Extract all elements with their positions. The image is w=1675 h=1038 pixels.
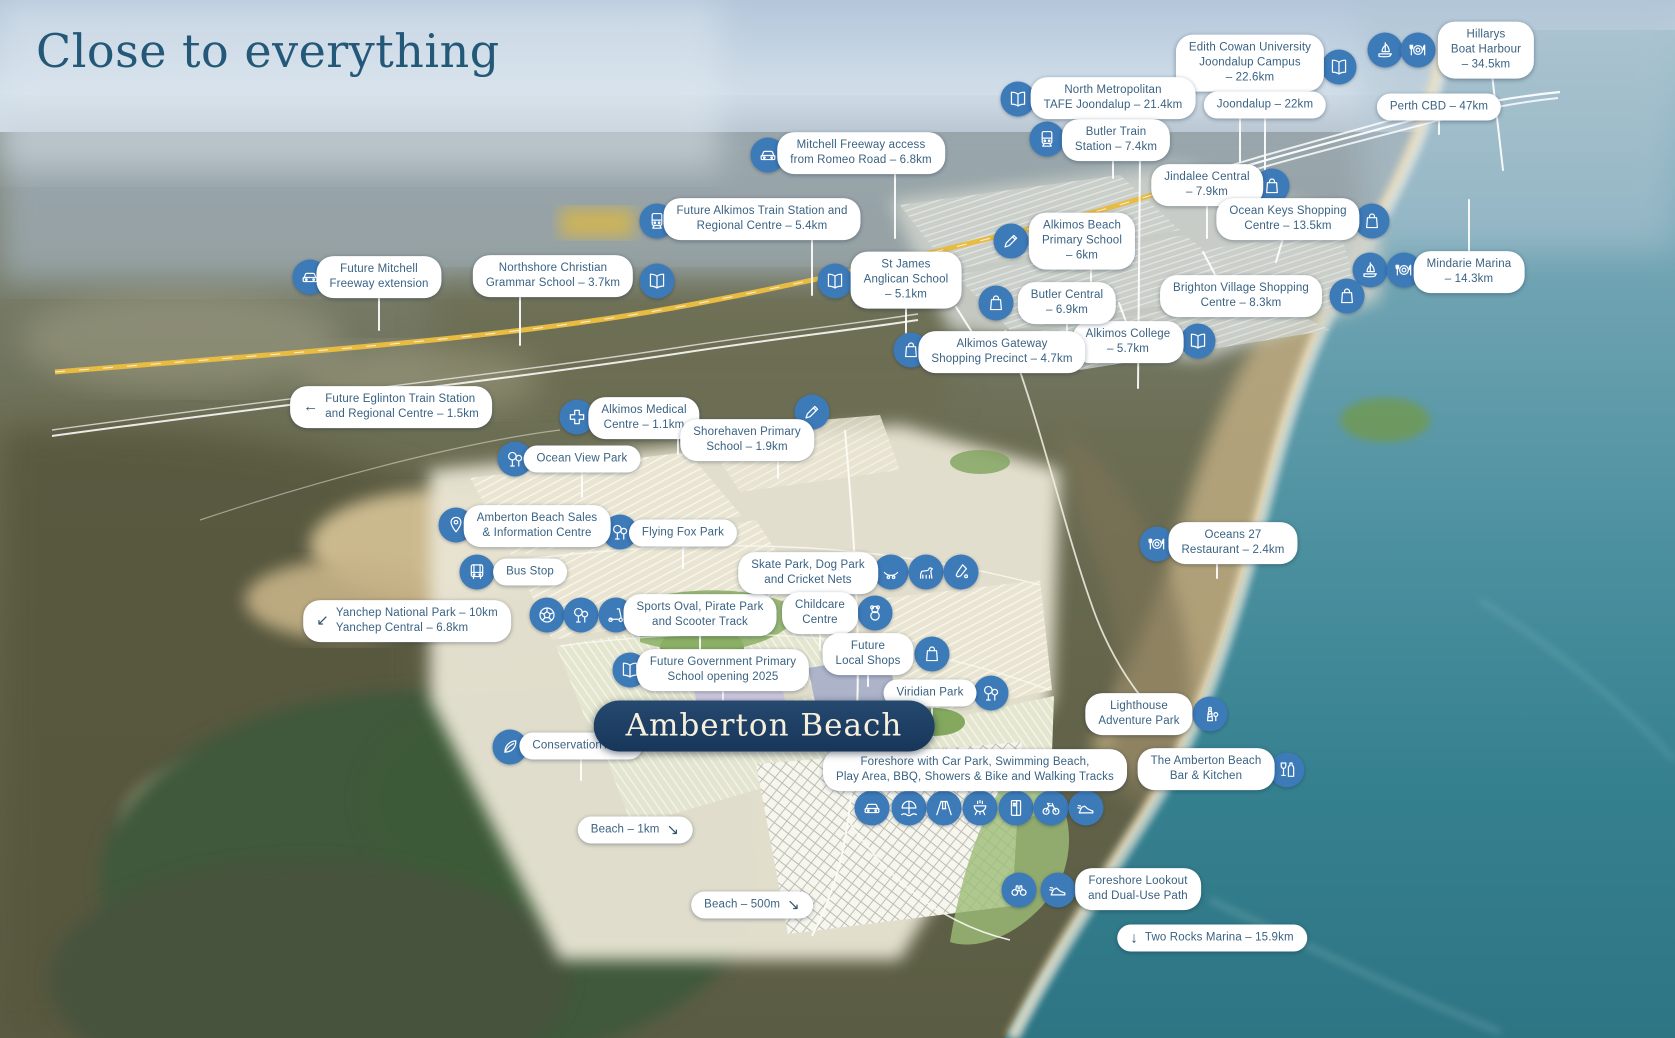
shopping-bag-icon [915,637,950,672]
callout-label: Alkimos College – 5.7km [1086,328,1171,355]
callout-label: St James Anglican School – 5.1km [864,259,949,301]
soccer-ball-icon [530,598,565,633]
callout-future-alkimos-train: Future Alkimos Train Station and Regiona… [664,198,861,240]
callout-label: Two Rocks Marina – 15.9km [1145,931,1294,946]
callout-label: Future Eglinton Train Station and Region… [325,392,479,422]
direction-arrow-icon: ↘ [787,898,800,913]
callout-label: Brighton Village Shopping Centre – 8.3km [1173,282,1309,309]
callout-future-local-shops: Future Local Shops [823,633,914,675]
callout-flying-fox-park: Flying Fox Park [629,520,737,547]
car-icon [855,791,890,826]
skateboard-icon [874,555,909,590]
callout-future-government-primary: Future Government Primary School opening… [637,649,809,691]
callout-amberton-bar-kitchen: The Amberton Beach Bar & Kitchen [1138,748,1275,790]
callout-ocean-keys-shopping: Ocean Keys Shopping Centre – 13.5km [1216,198,1359,240]
shower-icon [999,791,1034,826]
direction-arrow-icon: ↓ [1130,931,1138,946]
swing-icon [927,791,962,826]
callout-label: Edith Cowan University Joondalup Campus … [1189,42,1311,84]
callout-label: Future Alkimos Train Station and Regiona… [677,205,848,232]
callout-label: Bus Stop [506,566,554,578]
callout-label: Foreshore with Car Park, Swimming Beach,… [836,756,1114,783]
bbq-icon [963,791,998,826]
callout-foreshore: Foreshore with Car Park, Swimming Beach,… [823,749,1127,791]
callout-sports-oval: Sports Oval, Pirate Park and Scooter Tra… [624,594,777,636]
walking-shoe-icon [1041,873,1076,908]
callout-label: Ocean View Park [537,453,628,465]
dining-icon [1401,33,1436,68]
lighthouse-icon [1193,697,1228,732]
callout-edith-cowan-university: Edith Cowan University Joondalup Campus … [1176,35,1324,92]
trees-icon [564,598,599,633]
book-icon [1181,324,1216,359]
callout-shorehaven-primary: Shorehaven Primary School – 1.9km [680,419,814,461]
callout-label: Perth CBD – 47km [1390,101,1488,113]
callout-label: The Amberton Beach Bar & Kitchen [1151,755,1262,782]
callout-amberton-sales-centre: Amberton Beach Sales & Information Centr… [464,505,611,547]
callout-label: Beach – 1km [591,823,660,838]
callout-label: Future Government Primary School opening… [650,656,796,683]
book-icon [818,264,853,299]
callout-label: North Metropolitan TAFE Joondalup – 21.4… [1044,84,1183,111]
walking-shoe-icon [1069,791,1104,826]
binoculars-icon [1002,873,1037,908]
shopping-bag-icon [1330,279,1365,314]
callout-beach-500m: Beach – 500m↘ [691,892,813,919]
callout-northshore-grammar: Northshore Christian Grammar School – 3.… [473,255,633,297]
callout-label: Butler Train Station – 7.4km [1075,126,1157,153]
callout-label: Skate Park, Dog Park and Cricket Nets [751,559,865,586]
callout-lighthouse-adventure-park: Lighthouse Adventure Park [1085,693,1192,735]
callout-label: Alkimos Medical Centre – 1.1km [601,404,686,431]
teddy-bear-icon [858,596,893,631]
callout-joondalup: Joondalup – 22km [1204,92,1326,119]
callout-foreshore-lookout: Foreshore Lookout and Dual-Use Path [1075,868,1201,910]
aerial-map-page: Close to everything Hillarys Boat Harbou… [0,0,1675,1038]
cricket-bat-icon [944,555,979,590]
callout-label: Mitchell Freeway access from Romeo Road … [790,139,932,166]
callout-childcare-centre: Childcare Centre [782,592,858,634]
callout-label: Sports Oval, Pirate Park and Scooter Tra… [637,601,764,628]
callout-yanchep: ↙Yanchep National Park – 10km Yanchep Ce… [303,600,511,642]
callout-label: Hillarys Boat Harbour – 34.5km [1451,29,1521,71]
direction-arrow-icon: ↙ [316,614,329,629]
callout-label: Alkimos Gateway Shopping Precinct – 4.7k… [931,338,1072,365]
callout-layer: Hillarys Boat Harbour – 34.5kmPerth CBD … [0,0,1675,1038]
page-title: Close to everything [36,26,500,77]
callout-alkimos-college: Alkimos College – 5.7km [1073,321,1184,363]
train-icon [1030,122,1065,157]
shopping-bag-icon [979,286,1014,321]
callout-label: Viridian Park [897,687,964,699]
callout-label: Childcare Centre [795,599,845,626]
callout-ocean-view-park: Ocean View Park [524,446,641,473]
callout-future-mitchell-freeway: Future Mitchell Freeway extension [316,256,441,298]
callout-skate-dog-cricket: Skate Park, Dog Park and Cricket Nets [738,552,878,594]
callout-label: Oceans 27 Restaurant – 2.4km [1181,529,1284,556]
callout-oceans-27: Oceans 27 Restaurant – 2.4km [1168,522,1297,564]
callout-label: Northshore Christian Grammar School – 3.… [486,262,620,289]
callout-butler-central: Butler Central – 6.9km [1018,282,1116,324]
callout-label: Yanchep National Park – 10km Yanchep Cen… [336,606,498,636]
book-icon [640,264,675,299]
callout-label: Ocean Keys Shopping Centre – 13.5km [1229,205,1346,232]
callout-label: Beach – 500m [704,898,780,913]
callout-label: Lighthouse Adventure Park [1098,700,1179,727]
shopping-bag-icon [1355,204,1390,239]
trees-icon [974,676,1009,711]
callout-brighton-village-shopping: Brighton Village Shopping Centre – 8.3km [1160,275,1322,317]
callout-mitchell-freeway-access: Mitchell Freeway access from Romeo Road … [777,132,945,174]
callout-perth-cbd: Perth CBD – 47km [1377,94,1501,121]
beach-umbrella-icon [892,791,927,826]
callout-bus-stop: Bus Stop [493,559,567,586]
estate-name-banner: Amberton Beach [594,701,935,752]
callout-label: Flying Fox Park [642,527,724,539]
callout-label: Butler Central – 6.9km [1031,289,1103,316]
callout-north-metropolitan-tafe: North Metropolitan TAFE Joondalup – 21.4… [1031,77,1196,119]
callout-hillarys-boat-harbour: Hillarys Boat Harbour – 34.5km [1438,22,1534,79]
callout-label: Future Local Shops [836,640,901,667]
bus-icon [460,555,495,590]
callout-butler-train-station: Butler Train Station – 7.4km [1062,119,1170,161]
callout-two-rocks-marina: ↓Two Rocks Marina – 15.9km [1117,925,1307,952]
direction-arrow-icon: ↘ [667,823,680,838]
callout-label: Mindarie Marina – 14.3km [1427,258,1512,285]
callout-label: Shorehaven Primary School – 1.9km [693,426,801,453]
callout-st-james-anglican: St James Anglican School – 5.1km [851,252,962,309]
callout-label: Future Mitchell Freeway extension [329,263,428,290]
drinks-icon [1270,753,1305,788]
callout-label: Foreshore Lookout and Dual-Use Path [1088,875,1188,902]
callout-label: Jindalee Central – 7.9km [1164,171,1250,198]
pencil-icon [994,224,1029,259]
callout-label: Alkimos Beach Primary School – 6km [1042,220,1122,262]
callout-alkimos-beach-primary: Alkimos Beach Primary School – 6km [1029,213,1135,270]
dog-icon [909,555,944,590]
callout-alkimos-gateway: Alkimos Gateway Shopping Precinct – 4.7k… [918,331,1085,373]
bicycle-icon [1034,791,1069,826]
sailboat-icon [1368,33,1403,68]
callout-beach-1km: Beach – 1km↘ [578,817,693,844]
callout-future-eglinton-train: ←Future Eglinton Train Station and Regio… [290,386,492,428]
callout-label: Amberton Beach Sales & Information Centr… [477,512,598,539]
direction-arrow-icon: ← [303,400,318,415]
callout-label: Joondalup – 22km [1217,99,1313,111]
callout-mindarie-marina: Mindarie Marina – 14.3km [1414,251,1525,293]
book-icon [1322,50,1357,85]
